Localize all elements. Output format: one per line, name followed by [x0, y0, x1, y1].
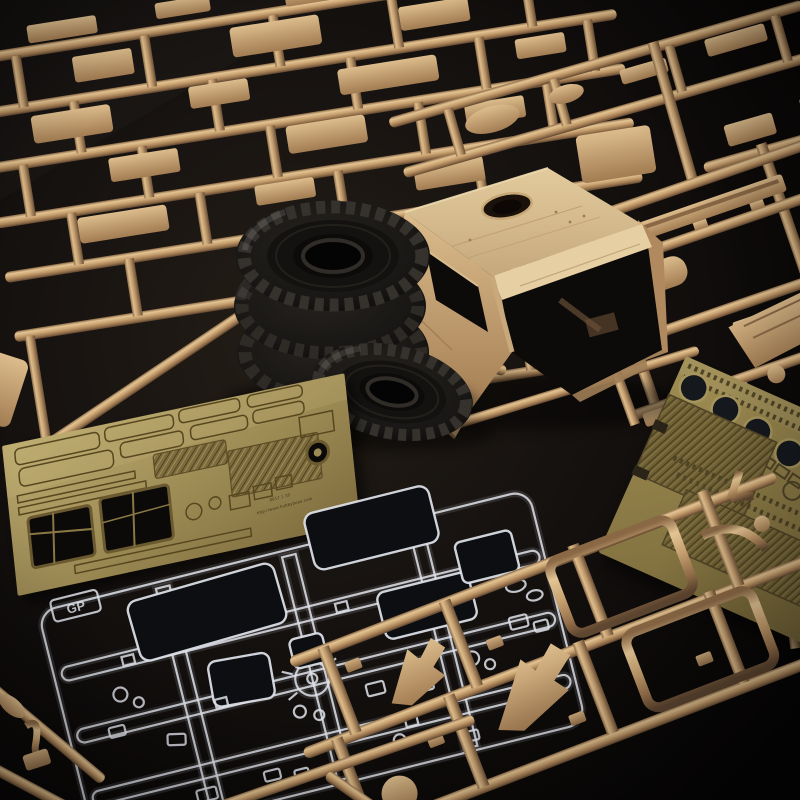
model-kit-photo: 8617 1 35 http://www.hobbyboss.com: [0, 0, 800, 800]
photo-stage: 8617 1 35 http://www.hobbyboss.com: [0, 0, 800, 800]
vignette: [0, 0, 800, 800]
